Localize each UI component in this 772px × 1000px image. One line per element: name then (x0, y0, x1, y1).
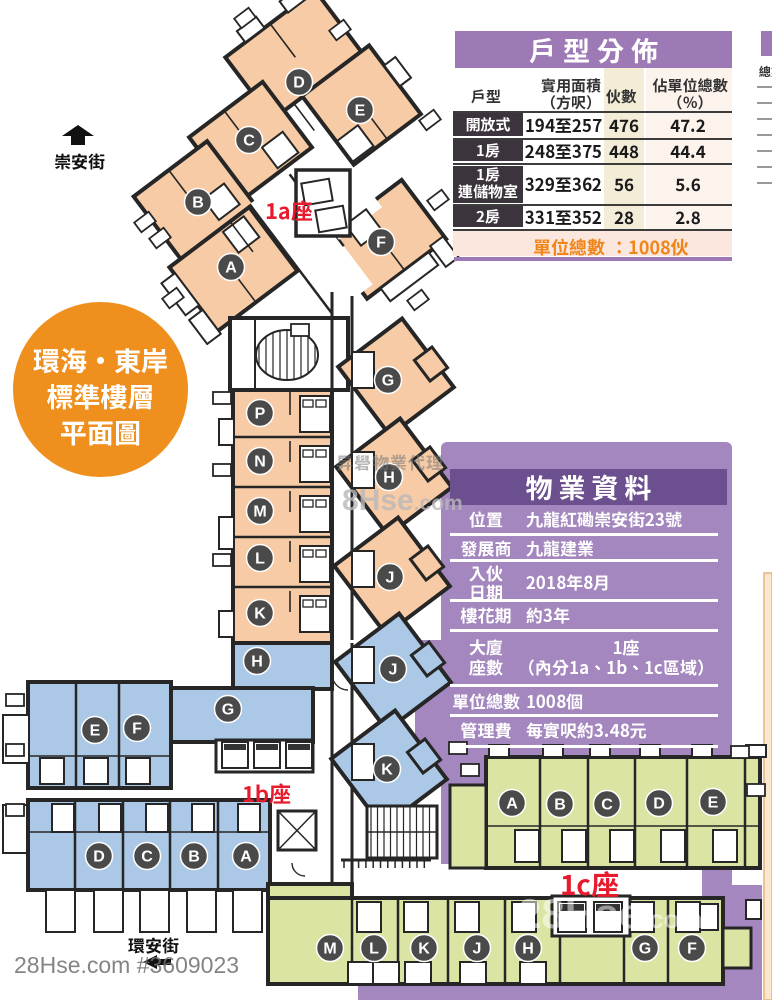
svg-text:F: F (132, 721, 142, 738)
svg-text:M: M (323, 941, 336, 958)
svg-text:C: C (601, 797, 613, 814)
svg-text:E: E (355, 103, 366, 120)
svg-text:D: D (293, 75, 305, 92)
svg-text:C: C (243, 133, 255, 150)
svg-text:B: B (188, 849, 200, 866)
svg-text:J: J (389, 662, 398, 679)
svg-text:K: K (254, 606, 266, 623)
svg-text:G: G (639, 941, 651, 958)
svg-text:K: K (418, 941, 430, 958)
svg-text:K: K (381, 762, 393, 779)
svg-text:E: E (708, 795, 719, 812)
svg-text:H: H (251, 654, 263, 671)
svg-text:G: G (382, 373, 394, 390)
svg-text:L: L (369, 941, 379, 958)
svg-text:L: L (255, 551, 265, 568)
svg-text:A: A (240, 849, 252, 866)
svg-text:E: E (90, 723, 101, 740)
svg-text:J: J (473, 941, 482, 958)
svg-text:F: F (376, 235, 386, 252)
svg-text:H: H (522, 941, 534, 958)
svg-text:N: N (254, 454, 266, 471)
svg-text:D: D (93, 849, 105, 866)
svg-text:C: C (141, 849, 153, 866)
svg-text:P: P (255, 406, 266, 423)
svg-text:F: F (687, 941, 697, 958)
svg-text:A: A (225, 260, 237, 277)
svg-text:J: J (386, 570, 395, 587)
svg-text:A: A (506, 796, 518, 813)
svg-text:B: B (192, 195, 204, 212)
svg-text:B: B (554, 797, 566, 814)
svg-text:總數: 總數 (759, 63, 772, 80)
svg-text:D: D (653, 796, 665, 813)
svg-text:M: M (253, 504, 266, 521)
svg-text:G: G (222, 702, 234, 719)
